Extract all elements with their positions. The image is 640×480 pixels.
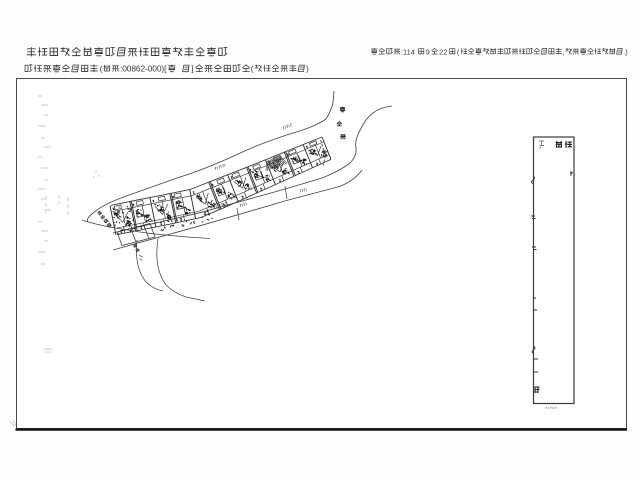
svg-text:]: ] — [191, 64, 193, 74]
svg-text::00862-000)[: :00862-000)[ — [120, 64, 167, 74]
svg-text:): ) — [306, 64, 309, 74]
svg-text::114: :114 — [401, 47, 415, 56]
svg-text:(: ( — [100, 64, 103, 74]
svg-text:.): .) — [623, 47, 628, 56]
svg-text:22: 22 — [439, 47, 447, 56]
svg-text:,: , — [562, 47, 564, 56]
svg-text:(: ( — [251, 64, 254, 74]
svg-text:9: 9 — [426, 47, 430, 56]
